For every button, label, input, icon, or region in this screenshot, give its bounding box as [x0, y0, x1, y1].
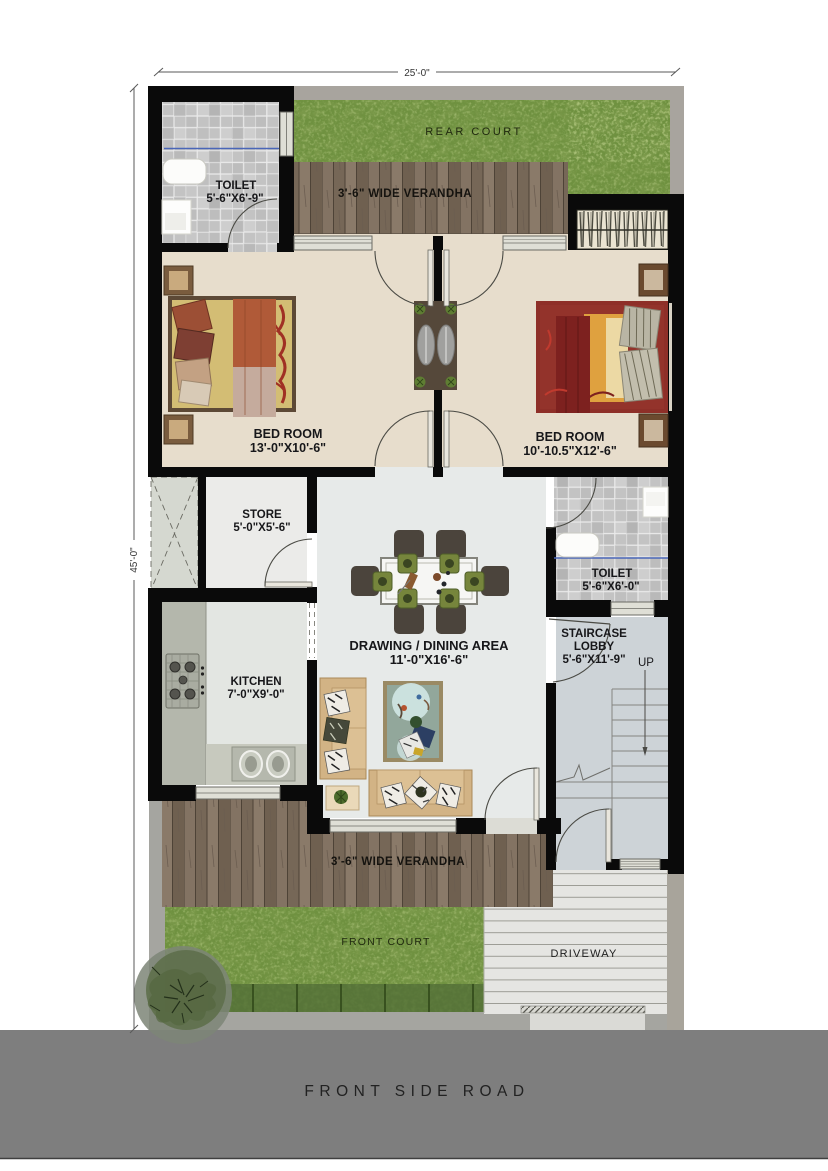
- svg-text:5'-6"X6'-9": 5'-6"X6'-9": [206, 193, 263, 205]
- svg-text:TOILET: TOILET: [592, 568, 633, 580]
- svg-text:REAR COURT: REAR COURT: [425, 126, 523, 138]
- svg-text:STORE: STORE: [242, 509, 282, 521]
- svg-text:5'-0"X5'-6": 5'-0"X5'-6": [233, 522, 290, 534]
- svg-text:3'-6" WIDE VERANDHA: 3'-6" WIDE VERANDHA: [331, 856, 465, 868]
- svg-text:UP: UP: [638, 657, 654, 669]
- svg-text:STAIRCASE: STAIRCASE: [561, 628, 627, 640]
- svg-text:LOBBY: LOBBY: [574, 641, 615, 653]
- svg-text:45'-0": 45'-0": [129, 547, 140, 573]
- svg-text:7'-0"X9'-0": 7'-0"X9'-0": [227, 689, 284, 701]
- svg-text:13'-0"X10'-6": 13'-0"X10'-6": [250, 441, 326, 455]
- svg-text:TOILET: TOILET: [216, 180, 257, 192]
- svg-text:11'-0"X16'-6": 11'-0"X16'-6": [390, 652, 469, 667]
- svg-text:KITCHEN: KITCHEN: [230, 676, 281, 688]
- svg-text:BED ROOM: BED ROOM: [536, 430, 605, 444]
- svg-text:5'-6"X11'-9": 5'-6"X11'-9": [562, 654, 625, 666]
- svg-text:3'-6" WIDE VERANDHA: 3'-6" WIDE VERANDHA: [338, 188, 472, 200]
- svg-text:25'-0": 25'-0": [404, 68, 430, 79]
- svg-text:DRIVEWAY: DRIVEWAY: [550, 948, 617, 960]
- svg-text:5'-6"X6'-0": 5'-6"X6'-0": [582, 581, 639, 593]
- svg-text:BED ROOM: BED ROOM: [254, 427, 323, 441]
- svg-text:FRONT COURT: FRONT COURT: [341, 936, 430, 948]
- svg-text:DRAWING / DINING AREA: DRAWING / DINING AREA: [349, 638, 509, 653]
- svg-text:FRONT SIDE ROAD: FRONT SIDE ROAD: [304, 1083, 529, 1100]
- svg-text:10'-10.5"X12'-6": 10'-10.5"X12'-6": [523, 444, 617, 458]
